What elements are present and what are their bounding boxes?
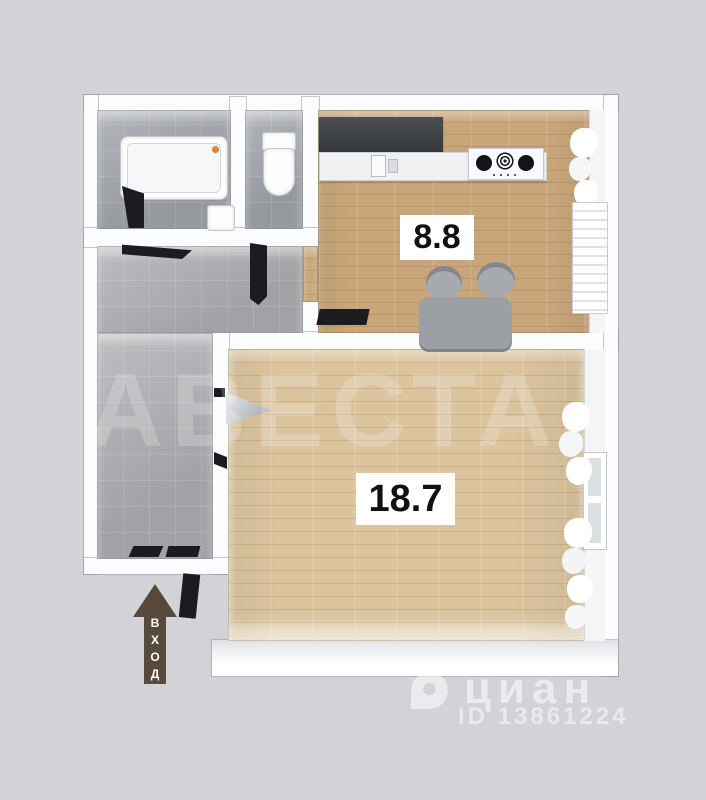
stove <box>468 148 544 180</box>
stove-knobs <box>493 174 519 176</box>
wall <box>604 95 618 676</box>
window-pane <box>588 458 601 496</box>
stove-burner <box>518 155 534 171</box>
wall <box>84 95 98 574</box>
entrance-door <box>179 573 201 619</box>
entrance-label: ВХОД <box>144 618 166 682</box>
hallway <box>97 246 303 333</box>
entrance-threshold <box>129 546 164 557</box>
kitchen-sink-drainer <box>388 159 398 173</box>
area-label-living-room: 18.7 <box>356 473 455 525</box>
wall <box>84 95 618 111</box>
kitchen-sink <box>371 155 386 177</box>
kitchen-door <box>250 243 267 305</box>
chair <box>477 262 515 298</box>
kitchen-mat <box>316 309 369 325</box>
bathtub <box>120 136 228 200</box>
entrance-arrow-icon <box>133 584 177 617</box>
stove-burner <box>496 152 514 170</box>
bathroom-sink <box>207 205 235 231</box>
cian-logo-pin-icon <box>411 672 448 709</box>
watermark-id: ID 13861224 <box>458 703 628 731</box>
kitchen-doorway <box>303 246 318 302</box>
stove-burner <box>476 155 492 171</box>
area-label-kitchen: 8.8 <box>400 215 474 260</box>
toilet-bowl <box>263 148 295 196</box>
kitchen-counter-dark <box>319 117 443 153</box>
watermark-agency: АВЕСТА <box>88 352 560 471</box>
floor-plan: ВХОД 8.8 18.7 АВЕСТА циан ID 13861224 <box>0 0 706 800</box>
bathtub-faucet <box>212 146 219 153</box>
wall <box>212 332 618 350</box>
entrance-threshold <box>166 546 201 557</box>
kitchen-radiator <box>572 202 608 314</box>
chair <box>426 266 462 300</box>
wall <box>84 228 319 247</box>
dining-table <box>419 297 512 349</box>
wall <box>84 558 229 574</box>
wall <box>302 97 319 238</box>
bathtub-basin <box>127 143 221 193</box>
